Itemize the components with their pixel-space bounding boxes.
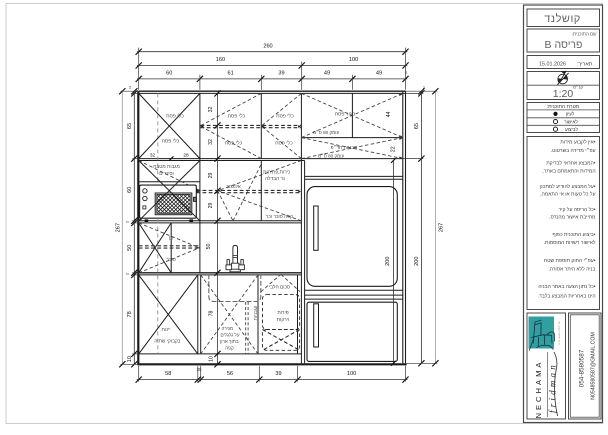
svg-text:המידות והתאמתם באתר,: המידות והתאמתם באתר, [542, 169, 595, 175]
svg-text:44: 44 [386, 111, 392, 117]
svg-text:10: 10 [209, 356, 215, 362]
svg-text:כלי פסח: כלי פסח [228, 113, 246, 120]
svg-text:פריסה B: פריסה B [545, 39, 583, 51]
svg-text:78: 78 [127, 311, 133, 317]
svg-text:עגבניות: עגבניות [253, 305, 258, 320]
svg-text:יינות: יינות [162, 328, 171, 333]
svg-text:כלי פסח: כלי פסח [166, 113, 184, 120]
svg-text:39: 39 [278, 70, 284, 76]
svg-text:מגירה: מגירה [222, 326, 234, 331]
svg-text:כלי פסח: כלי פסח [162, 138, 180, 145]
svg-text:56: 56 [227, 371, 233, 377]
svg-text:עומק 80 ס״מ: עומק 80 ס״מ [318, 154, 345, 159]
svg-text:1:20: 1:20 [553, 88, 574, 100]
svg-text:וירקות: וירקות [277, 318, 289, 323]
svg-text:לאישור רשויות המוסמות.: לאישור רשויות המוסמות. [544, 239, 596, 246]
svg-text:49: 49 [376, 70, 382, 76]
svg-text:תבניות חד״פ: תבניות חד״פ [331, 145, 358, 151]
svg-text:תאריך:: תאריך: [577, 61, 593, 67]
svg-text:60: 60 [166, 70, 172, 76]
svg-text:200: 200 [414, 257, 420, 266]
svg-text:•אין לקבוע מידות: •אין לקבוע מידות [560, 139, 596, 146]
svg-text:בקבוקי שתיה: בקבוקי שתיה [154, 340, 180, 345]
svg-text:N0548580587@GMAIL.COM: N0548580587@GMAIL.COM [591, 332, 597, 400]
svg-text:267: 267 [438, 223, 444, 232]
svg-text:61: 61 [227, 70, 233, 76]
svg-text:בניה ללא היתר אסורה.: בניה ללא היתר אסורה. [548, 265, 595, 272]
svg-text:•המבצע אחראי לבדיקת: •המבצע אחראי לבדיקת [546, 159, 596, 166]
svg-text:סוכר: סוכר [166, 258, 175, 263]
svg-text:על כל טעות או אי התאמה,: על כל טעות או אי התאמה, [540, 191, 595, 198]
svg-text:50: 50 [127, 245, 133, 251]
svg-text:בתוך ארון: בתוך ארון [220, 339, 239, 344]
svg-text:29: 29 [208, 203, 214, 209]
svg-text:260: 260 [263, 43, 272, 49]
svg-text:160: 160 [216, 57, 225, 63]
svg-text:15.01.2026: 15.01.2026 [539, 61, 566, 67]
svg-text:שם התוכנית:: שם התוכנית: [572, 31, 597, 36]
svg-text:78: 78 [209, 311, 215, 317]
svg-text:הינו באחריות המבצע בלבד.: הינו באחריות המבצע בלבד. [538, 293, 596, 300]
svg-text:65: 65 [414, 123, 420, 129]
svg-text:2: 2 [423, 85, 425, 90]
svg-text:10: 10 [127, 356, 133, 362]
svg-text:כלי פסח: כלי פסח [225, 140, 243, 147]
svg-text:054-8580587: 054-8580587 [578, 349, 585, 387]
svg-text:כלי פסח: כלי פסח [275, 140, 293, 147]
svg-text:49: 49 [324, 70, 330, 76]
svg-text:קנ״מ: קנ״מ [573, 85, 583, 90]
svg-text:2: 2 [124, 221, 129, 223]
svg-text:28: 28 [183, 153, 189, 159]
svg-text:אלפצוב: אלפצוב [226, 184, 240, 189]
svg-text:עפ״י מדידה בשרטוט.: עפ״י מדידה בשרטוט. [551, 147, 596, 154]
svg-text:•עפ״י החוק תוספת שטח: •עפ״י החוק תוספת שטח [544, 257, 596, 264]
svg-text:22: 22 [390, 146, 396, 152]
svg-text:יום: יום [169, 236, 175, 241]
svg-text:קושלנד: קושלנד [544, 12, 581, 25]
svg-text:מטרת התוכנית:: מטרת התוכנית: [547, 104, 580, 110]
svg-text:32: 32 [208, 107, 214, 113]
svg-text:מגבות מטבח: מגבות מטבח [153, 165, 180, 170]
svg-text:עומק 80 ס״מ: עומק 80 ס״מ [313, 130, 340, 135]
svg-text:2: 2 [124, 273, 129, 275]
svg-text:תנור פסח: תנור פסח [335, 111, 356, 117]
svg-text:וסינרים: וסינרים [159, 172, 173, 177]
svg-text:קפה: קפה [225, 346, 234, 351]
svg-text:60: 60 [127, 187, 133, 193]
svg-text:אדריכלות ועיצוב פנים: אדריכלות ועיצוב פנים [557, 321, 561, 345]
svg-text:50: 50 [206, 244, 212, 250]
svg-text:נר הבדלה: נר הבדלה [265, 175, 285, 182]
svg-text:100: 100 [349, 57, 358, 63]
svg-text:•כל נתון הצעה באתר הבניה: •כל נתון הצעה באתר הבניה [538, 283, 595, 290]
svg-text:לאישור: לאישור [564, 119, 578, 124]
svg-text:נירות,פתיחות: נירות,פתיחות [263, 171, 290, 176]
svg-text:•ביצוע התוכנית כפוף: •ביצוע התוכנית כפוף [553, 232, 596, 238]
svg-text:65: 65 [127, 123, 133, 129]
svg-text:2: 2 [129, 85, 131, 90]
svg-text:32: 32 [208, 139, 214, 145]
svg-text:לעיון: לעיון [566, 112, 575, 117]
svg-text:100: 100 [347, 371, 356, 377]
svg-text:29: 29 [208, 173, 214, 179]
svg-text:כלי פסח: כלי פסח [276, 113, 294, 120]
svg-text:NECHAMA: NECHAMA [534, 360, 543, 419]
svg-text:•כל הריסה על קיר: •כל הריסה על קיר [558, 206, 595, 213]
svg-text:קפה סוכר וכו': קפה סוכר וכו' [266, 214, 293, 220]
svg-text:32: 32 [150, 153, 156, 159]
svg-text:•על המבצע להודיע למתכנן: •על המבצע להודיע למתכנן [539, 183, 595, 190]
svg-text:39: 39 [275, 371, 281, 377]
svg-text:267: 267 [115, 223, 121, 232]
svg-text:פירות: פירות [277, 311, 288, 316]
svg-text:מחייבת אישור מהנדס.: מחייבת אישור מהנדס. [549, 214, 596, 220]
svg-text:58: 58 [165, 371, 171, 377]
svg-text:200: 200 [385, 257, 391, 266]
svg-text:לביצוע: לביצוע [565, 127, 578, 132]
svg-text:על גלגלים: על גלגלים [220, 332, 239, 337]
svg-text:סכום חלבי: סכום חלבי [269, 284, 290, 291]
